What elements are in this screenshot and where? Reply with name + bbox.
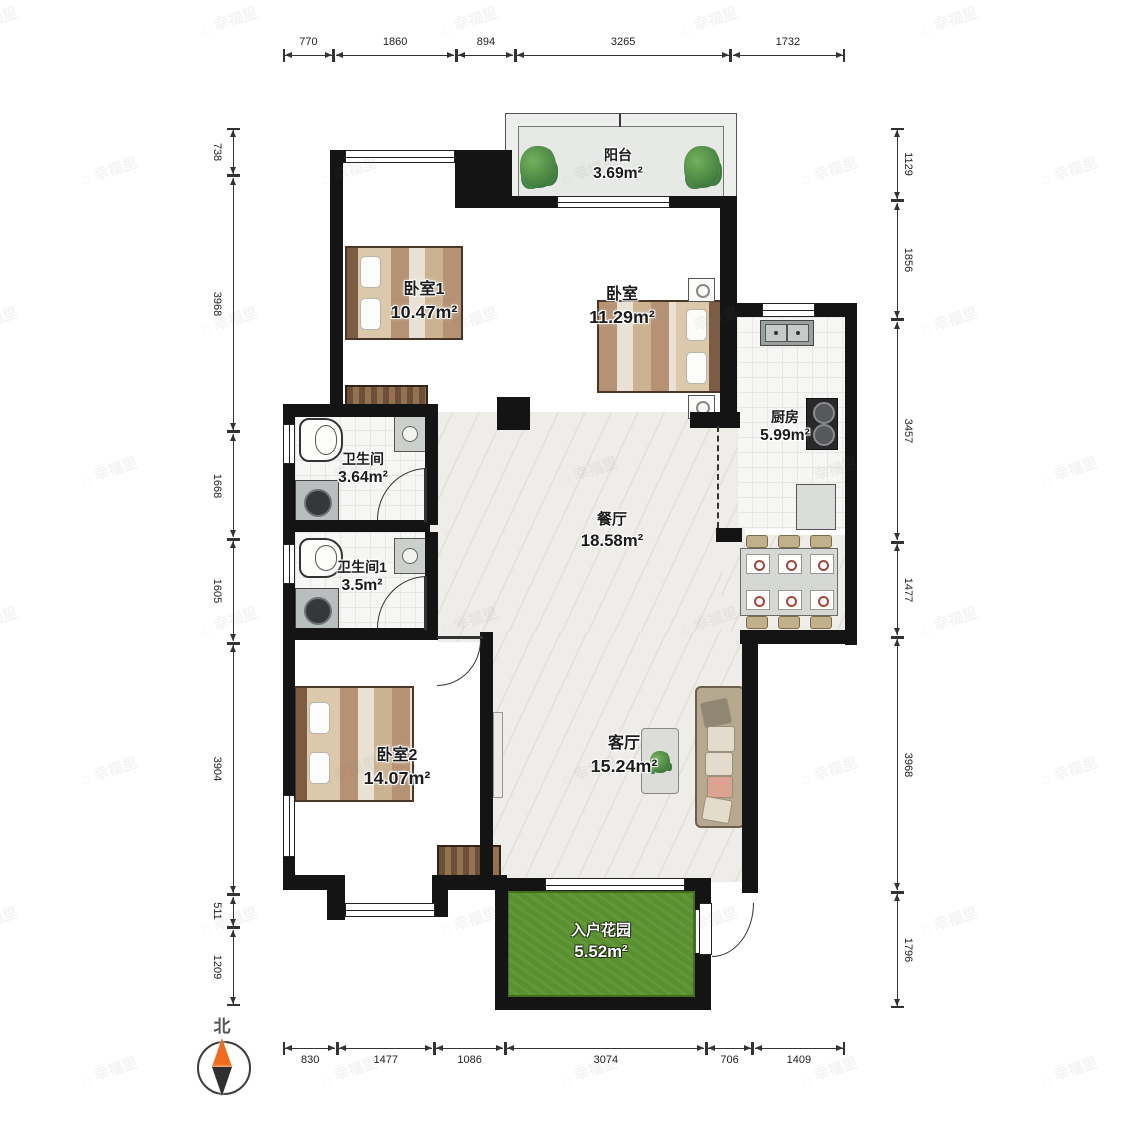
- window-icon: [283, 544, 295, 584]
- dimension-segment: 1668: [209, 432, 239, 540]
- dimension-line: [708, 1048, 750, 1049]
- watermark-text: 幸福里: [92, 154, 140, 184]
- dimension-segment: 1856: [888, 201, 918, 320]
- room-label-balcony: 阳台3.69m²: [593, 146, 643, 185]
- window-icon: [283, 795, 295, 857]
- chair: [810, 616, 832, 629]
- dimension-value: 3265: [611, 36, 635, 48]
- dimension-tick: [891, 201, 904, 203]
- dimension-value: 1860: [383, 36, 407, 48]
- dimension-tick: [843, 49, 845, 62]
- watermark-text: 幸福里: [932, 904, 980, 934]
- dimension-tick: [227, 928, 240, 930]
- watermark: ⌂ 幸福里: [1038, 152, 1100, 190]
- watermark-text: 幸福里: [932, 4, 980, 34]
- wall-segment: [455, 150, 512, 208]
- watermark: ⌂ 幸福里: [798, 752, 860, 790]
- dimension-tick: [227, 176, 240, 178]
- nightstand: [688, 278, 715, 302]
- watermark: ⌂ 幸福里: [918, 902, 980, 940]
- plant-icon: [684, 146, 720, 188]
- dimension-line: [233, 897, 234, 926]
- watermark: ⌂ 幸福里: [0, 302, 20, 340]
- dimension-segment: 770: [283, 35, 334, 65]
- dimension-segment: 1605: [209, 539, 239, 643]
- watermark-text: 幸福里: [0, 304, 20, 334]
- dimension-tick: [843, 1042, 845, 1055]
- dimension-tick: [891, 542, 904, 544]
- dimension-value: 1086: [457, 1054, 481, 1066]
- dimension-value: 738: [211, 143, 223, 161]
- house-icon: ⌂: [919, 618, 937, 638]
- compass-north-needle: [212, 1038, 232, 1067]
- wall-segment: [330, 150, 343, 412]
- dimension-segment: 3904: [209, 643, 239, 895]
- dimension-line: [897, 203, 898, 318]
- dimension-line: [458, 55, 513, 56]
- room-label-dining: 餐厅18.58m²: [581, 510, 644, 551]
- dimension-line: [339, 1048, 432, 1049]
- watermark: ⌂ 幸福里: [678, 2, 740, 40]
- watermark-text: 幸福里: [452, 4, 500, 34]
- room-label-bedroom2: 卧室214.07m²: [364, 746, 431, 790]
- watermark-text: 幸福里: [452, 904, 500, 934]
- dimension-line: [897, 894, 898, 1006]
- dimension-value: 1668: [211, 473, 223, 497]
- watermark: ⌂ 幸福里: [0, 602, 20, 640]
- dimension-segment: 706: [706, 1041, 752, 1071]
- watermark-text: 幸福里: [212, 4, 260, 34]
- kitchen-opening-dashed: [717, 426, 722, 528]
- watermark-text: 幸福里: [812, 754, 860, 784]
- wall-segment: [497, 397, 530, 430]
- dimension-value: 1409: [787, 1054, 811, 1066]
- dimension-value: 1477: [373, 1054, 397, 1066]
- chair: [778, 535, 800, 548]
- dimension-segment: 3968: [209, 176, 239, 432]
- wall-segment: [283, 628, 438, 640]
- watermark-text: 幸福里: [0, 904, 20, 934]
- house-icon: ⌂: [919, 18, 937, 38]
- door-leaf: [424, 468, 427, 522]
- house-icon: ⌂: [79, 768, 97, 788]
- dimension-value: 894: [477, 36, 495, 48]
- dimension-tick: [515, 49, 517, 62]
- dimension-segment: 3074: [505, 1041, 706, 1071]
- watermark-text: 幸福里: [932, 304, 980, 334]
- wall-segment: [327, 875, 345, 920]
- watermark: ⌂ 幸福里: [1038, 1052, 1100, 1090]
- watermark-text: 幸福里: [692, 4, 740, 34]
- watermark: ⌂ 幸福里: [0, 902, 20, 940]
- wall-segment: [742, 630, 758, 893]
- dimension-segment: 1409: [753, 1041, 845, 1071]
- dimension-line: [285, 55, 332, 56]
- dimension-line: [233, 178, 234, 430]
- sliding-door-icon: [545, 878, 685, 891]
- room-label-garden: 入户花园5.52m²: [571, 921, 631, 962]
- house-icon: ⌂: [799, 768, 817, 788]
- dimension-tick: [891, 1006, 904, 1008]
- watermark-text: 幸福里: [92, 1054, 140, 1084]
- watermark-text: 幸福里: [932, 604, 980, 634]
- dimension-value: 511: [211, 903, 223, 921]
- dimension-line: [517, 55, 728, 56]
- floor-plan: 阳台3.69m² 卧室110.47m² 卧室11.29m² 厨房5.99m² 卫…: [0, 0, 1125, 1125]
- dimension-tick: [227, 1004, 240, 1006]
- watermark: ⌂ 幸福里: [0, 2, 20, 40]
- dimension-value: 770: [299, 36, 317, 48]
- chair: [746, 616, 768, 629]
- wall-segment: [716, 528, 742, 542]
- bathroom-sink: [394, 416, 426, 452]
- watermark: ⌂ 幸福里: [918, 602, 980, 640]
- dimension-tick: [283, 1042, 285, 1055]
- dimension-line: [336, 55, 455, 56]
- dimension-segment: 1732: [731, 35, 845, 65]
- dimension-segment: 3457: [888, 320, 918, 542]
- dimension-value: 3074: [594, 1054, 618, 1066]
- watermark-text: 幸福里: [0, 604, 20, 634]
- dimension-line: [733, 55, 843, 56]
- door-leaf: [424, 576, 427, 630]
- compass-south-needle: [212, 1067, 232, 1096]
- room-label-bathroom: 卫生间3.64m²: [338, 450, 388, 489]
- house-icon: ⌂: [79, 1068, 97, 1088]
- dimension-segment: 1477: [888, 542, 918, 637]
- dimension-segment: 738: [209, 128, 239, 176]
- window-icon: [283, 424, 295, 464]
- watermark: ⌂ 幸福里: [78, 452, 140, 490]
- dimension-tick: [227, 643, 240, 645]
- dimension-segment: 1129: [888, 128, 918, 201]
- dimension-value: 3968: [902, 753, 914, 777]
- watermark-text: 幸福里: [92, 454, 140, 484]
- room-label-bedroom1: 卧室110.47m²: [391, 280, 458, 324]
- toilet: [299, 418, 343, 462]
- dimension-line: [897, 544, 898, 635]
- dimension-tick: [891, 892, 904, 894]
- house-icon: ⌂: [799, 1068, 817, 1088]
- dimension-tick: [334, 49, 336, 62]
- stove: [806, 398, 838, 450]
- watermark-text: 幸福里: [1052, 154, 1100, 184]
- watermark-text: 幸福里: [1052, 454, 1100, 484]
- dimension-line: [436, 1048, 503, 1049]
- fridge: [796, 484, 836, 530]
- wall-segment: [695, 953, 711, 1010]
- compass-north-label: 北: [214, 1012, 231, 1037]
- wall-segment: [495, 878, 508, 1010]
- wall-segment: [283, 520, 430, 532]
- dimension-line: [897, 639, 898, 890]
- dimension-tick: [753, 1042, 755, 1055]
- dimension-segment: 511: [209, 895, 239, 928]
- dimension-value: 1209: [211, 955, 223, 979]
- washing-machine: [295, 588, 339, 632]
- dimension-tick: [731, 49, 733, 62]
- entry-door-leaf: [699, 903, 712, 955]
- balcony-divider: [619, 113, 621, 127]
- house-icon: ⌂: [439, 918, 457, 938]
- plant-icon: [520, 146, 556, 188]
- sliding-door-icon: [557, 196, 670, 208]
- tv-cabinet: [493, 712, 503, 798]
- dimension-line: [233, 645, 234, 893]
- watermark-text: 幸福里: [92, 754, 140, 784]
- dimension-tick: [283, 49, 285, 62]
- wall-segment: [283, 404, 437, 417]
- watermark: ⌂ 幸福里: [798, 152, 860, 190]
- dimension-segment: 1860: [334, 35, 457, 65]
- house-icon: ⌂: [799, 168, 817, 188]
- dimension-tick: [456, 49, 458, 62]
- dimension-tick: [227, 539, 240, 541]
- sofa: [695, 686, 745, 828]
- dimension-tick: [227, 128, 240, 130]
- dimension-line: [285, 1048, 335, 1049]
- bathroom-sink: [394, 538, 426, 574]
- dimension-tick: [891, 320, 904, 322]
- wall-segment: [720, 196, 737, 426]
- room-label-bathroom1: 卫生间13.5m²: [337, 558, 387, 597]
- dimension-value: 3968: [211, 291, 223, 315]
- house-icon: ⌂: [1039, 1068, 1057, 1088]
- dimension-tick: [505, 1042, 507, 1055]
- dimension-line: [233, 130, 234, 174]
- watermark: ⌂ 幸福里: [918, 2, 980, 40]
- washing-machine: [295, 480, 339, 524]
- watermark: ⌂ 幸福里: [918, 302, 980, 340]
- chair: [810, 535, 832, 548]
- dimension-line: [233, 541, 234, 641]
- dimension-tick: [891, 128, 904, 130]
- house-icon: ⌂: [1039, 168, 1057, 188]
- dimension-value: 1605: [211, 579, 223, 603]
- dimension-value: 1796: [902, 938, 914, 962]
- watermark-text: 幸福里: [1052, 754, 1100, 784]
- wall-segment: [495, 997, 710, 1010]
- door-leaf: [437, 636, 483, 639]
- dimension-tick: [434, 1042, 436, 1055]
- dimension-tick: [227, 432, 240, 434]
- room-label-kitchen: 厨房5.99m²: [760, 408, 810, 447]
- dimension-value: 1477: [902, 578, 914, 602]
- dimension-value: 830: [301, 1054, 319, 1066]
- dimension-tick: [891, 637, 904, 639]
- chair: [746, 535, 768, 548]
- room-label-living: 客厅15.24m²: [591, 734, 658, 778]
- dimension-tick: [337, 1042, 339, 1055]
- watermark: ⌂ 幸福里: [78, 152, 140, 190]
- floor-dining: [425, 412, 722, 640]
- watermark: ⌂ 幸福里: [1038, 452, 1100, 490]
- dimension-value: 1732: [776, 36, 800, 48]
- house-icon: ⌂: [79, 168, 97, 188]
- house-icon: ⌂: [1039, 768, 1057, 788]
- house-icon: ⌂: [199, 18, 217, 38]
- house-icon: ⌂: [79, 468, 97, 488]
- dimension-value: 706: [720, 1054, 738, 1066]
- watermark: ⌂ 幸福里: [78, 1052, 140, 1090]
- watermark: ⌂ 幸福里: [198, 2, 260, 40]
- dimension-segment: 1477: [337, 1041, 434, 1071]
- house-icon: ⌂: [1039, 468, 1057, 488]
- house-icon: ⌂: [319, 1068, 337, 1088]
- dimension-line: [507, 1048, 704, 1049]
- dimension-value: 1856: [902, 248, 914, 272]
- dimension-line: [233, 434, 234, 538]
- watermark-text: 幸福里: [812, 154, 860, 184]
- window-icon: [762, 303, 815, 317]
- house-icon: ⌂: [919, 318, 937, 338]
- dimension-line: [897, 130, 898, 199]
- wall-segment: [845, 303, 857, 645]
- dimension-line: [233, 930, 234, 1004]
- dimension-segment: 830: [283, 1041, 337, 1071]
- dimension-segment: 3265: [515, 35, 730, 65]
- house-icon: ⌂: [919, 918, 937, 938]
- house-icon: ⌂: [559, 1068, 577, 1088]
- wall-segment: [690, 412, 740, 428]
- dimension-tick: [227, 895, 240, 897]
- dimension-value: 3457: [902, 419, 914, 443]
- watermark: ⌂ 幸福里: [78, 752, 140, 790]
- window-icon: [345, 903, 435, 917]
- dimension-segment: 1086: [434, 1041, 505, 1071]
- kitchen-sink: [760, 320, 814, 346]
- watermark-text: 幸福里: [0, 4, 20, 34]
- room-label-bedroom: 卧室11.29m²: [589, 285, 655, 329]
- door-arc-entry: [712, 903, 754, 957]
- dimension-line: [897, 322, 898, 540]
- watermark: ⌂ 幸福里: [438, 2, 500, 40]
- dimension-segment: 894: [456, 35, 515, 65]
- chair: [778, 616, 800, 629]
- dimension-value: 3904: [211, 757, 223, 781]
- dimension-segment: 1209: [209, 928, 239, 1006]
- watermark-text: 幸福里: [1052, 1054, 1100, 1084]
- dimension-tick: [706, 1042, 708, 1055]
- dimension-line: [755, 1048, 843, 1049]
- dining-table: [740, 548, 838, 616]
- window-icon: [345, 150, 455, 163]
- dimension-segment: 3968: [888, 637, 918, 892]
- watermark: ⌂ 幸福里: [1038, 752, 1100, 790]
- dimension-value: 1129: [902, 152, 914, 176]
- dimension-segment: 1796: [888, 892, 918, 1008]
- wall-segment: [480, 632, 493, 882]
